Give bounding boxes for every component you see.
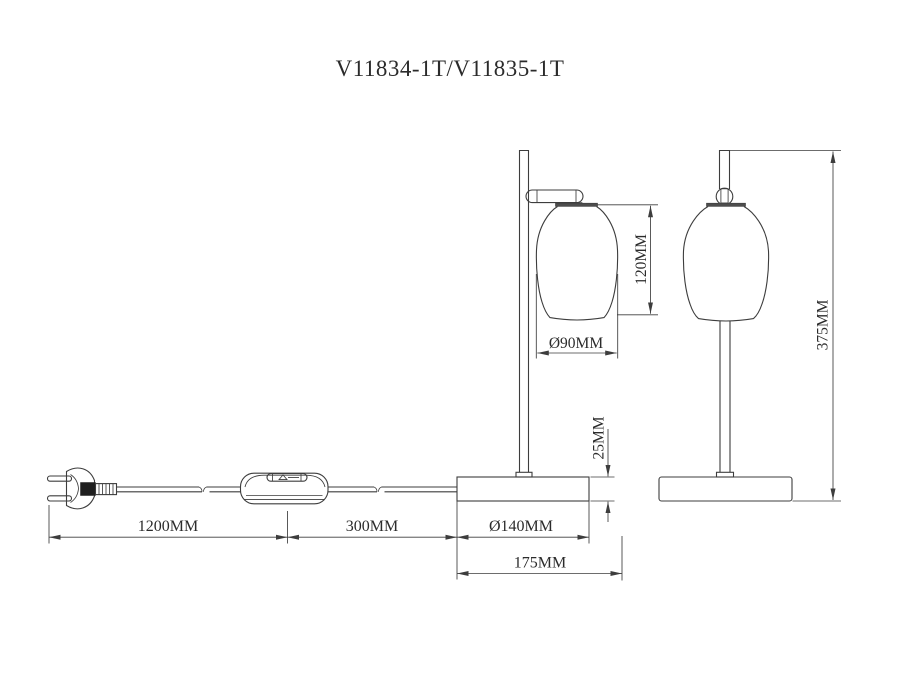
dim-base-height: 25MM	[591, 416, 615, 522]
dim-label-total-height: 375MM	[815, 299, 832, 350]
dim-base-depth: 175MM	[457, 536, 622, 581]
shade-rim-front	[556, 203, 598, 206]
drawing-page: V11834-1T/V11835-1T	[0, 0, 900, 675]
plug-pin-top	[48, 476, 72, 481]
lamp-arm	[526, 190, 583, 203]
dim-label-cord-length: 1200MM	[138, 518, 198, 535]
technical-drawing: V11834-1T/V11835-1T	[0, 0, 900, 675]
hanger-pin	[721, 189, 728, 203]
plug-pin-bottom	[48, 496, 72, 501]
cord-break-2	[374, 487, 382, 492]
dim-label-base-diameter: Ø140MM	[489, 518, 553, 535]
power-plug	[48, 468, 117, 509]
lamp-arm-caps	[537, 190, 576, 203]
pole-foot-front	[516, 472, 532, 477]
power-cord-segment-1	[117, 487, 242, 492]
lamp-shade-front	[536, 207, 617, 321]
lamp-pole-front	[520, 151, 529, 473]
lamp-base-front	[457, 477, 589, 501]
lamp-pole-side-lower	[720, 321, 730, 473]
dim-label-base-height: 25MM	[591, 416, 608, 459]
dim-ext-lines	[591, 477, 615, 501]
drawing-title: V11834-1T/V11835-1T	[336, 56, 565, 81]
shade-rim-side	[707, 203, 746, 206]
dim-label-base-depth: 175MM	[514, 555, 566, 572]
switch-seam-lines	[245, 496, 325, 500]
power-cord-segment-2	[328, 487, 457, 492]
plug-cord-grip	[81, 483, 96, 496]
pole-foot-side	[717, 472, 734, 477]
dim-label-switch-distance: 300MM	[346, 518, 398, 535]
lamp-pole-side-upper	[720, 151, 730, 190]
side-view	[659, 151, 792, 502]
dim-shade-height: 120MM	[598, 205, 659, 315]
dim-ext-lines	[49, 502, 589, 580]
cord-break-1	[199, 487, 207, 492]
lamp-shade-side	[683, 207, 768, 322]
plug-strain-ribs	[99, 484, 113, 495]
dim-label-shade-diameter: Ø90MM	[549, 335, 603, 352]
dim-bottom-chain: 1200MM 300MM Ø140MM	[49, 502, 589, 580]
dim-label-shade-height: 120MM	[633, 234, 650, 285]
cord-lines-2	[328, 487, 457, 492]
cord-lines-1	[117, 487, 242, 492]
lamp-base-side	[659, 477, 792, 501]
dim-total-height: 375MM	[730, 151, 842, 502]
shade-hanger-loop	[716, 188, 733, 205]
inline-switch	[241, 473, 329, 504]
